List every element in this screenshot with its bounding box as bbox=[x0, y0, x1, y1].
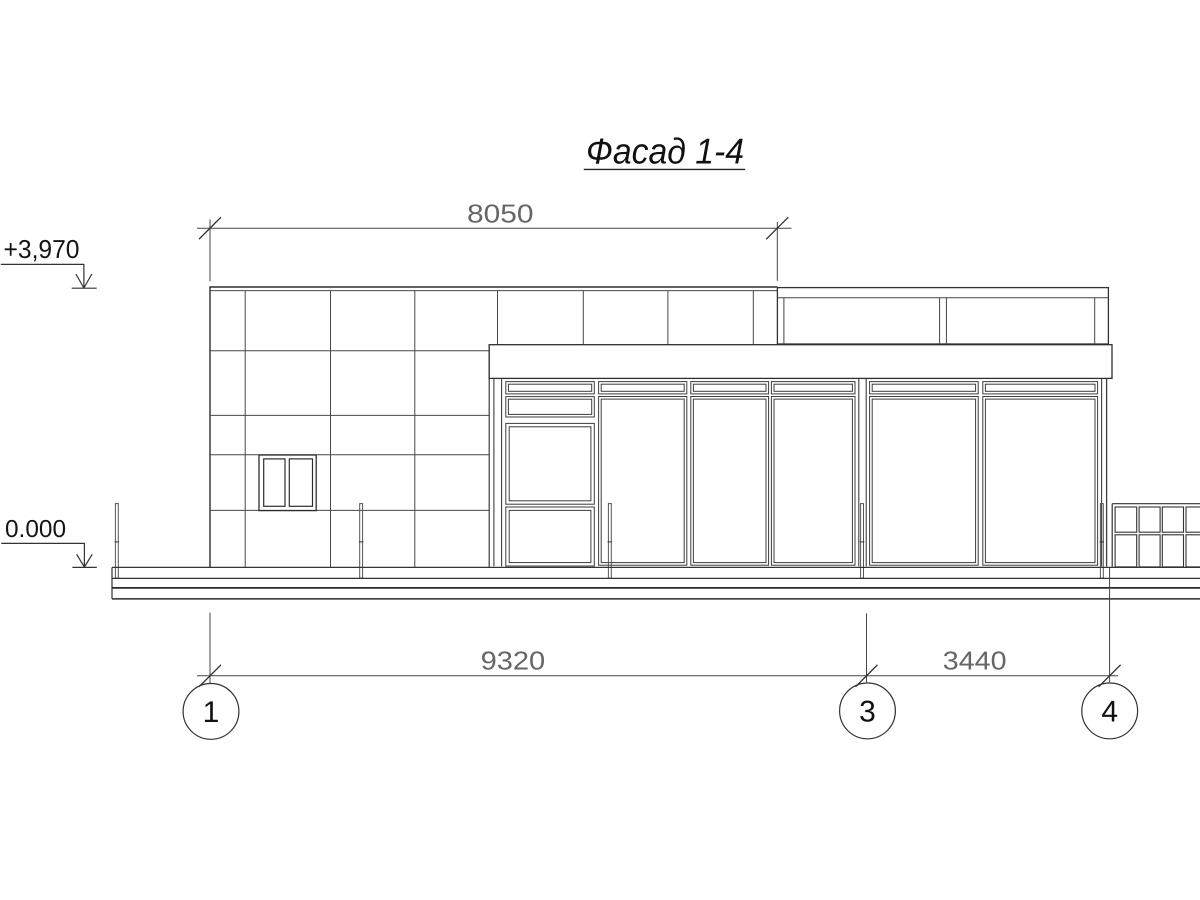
svg-text:3440: 3440 bbox=[943, 645, 1007, 675]
svg-text:3: 3 bbox=[859, 696, 876, 729]
svg-text:8050: 8050 bbox=[467, 199, 534, 229]
svg-text:9320: 9320 bbox=[481, 645, 545, 675]
svg-text:1: 1 bbox=[203, 696, 220, 729]
svg-text:0.000: 0.000 bbox=[5, 516, 66, 543]
svg-text:+3,970: +3,970 bbox=[4, 234, 80, 264]
svg-text:Фасад 1-4: Фасад 1-4 bbox=[586, 131, 744, 172]
svg-text:4: 4 bbox=[1101, 696, 1118, 729]
